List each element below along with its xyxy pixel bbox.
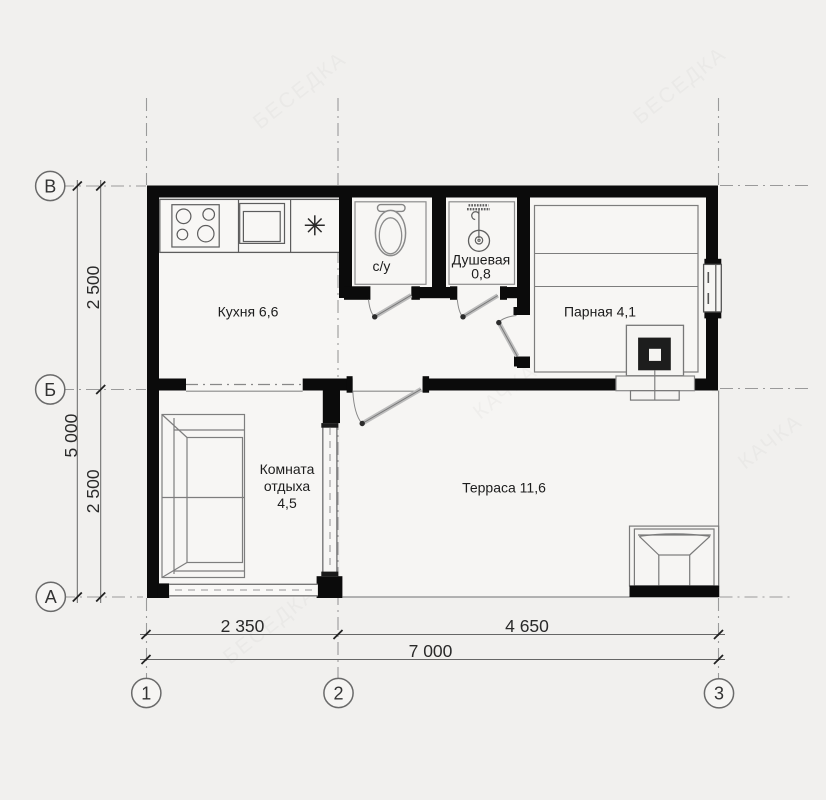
svg-text:Комната: Комната	[260, 461, 315, 477]
svg-text:4 650: 4 650	[505, 616, 549, 636]
svg-text:4,5: 4,5	[277, 495, 297, 511]
svg-text:с/у: с/у	[373, 258, 391, 274]
svg-text:Кухня 6,6: Кухня 6,6	[218, 304, 279, 320]
svg-text:Терраса 11,6: Терраса 11,6	[462, 480, 546, 496]
svg-text:1: 1	[141, 683, 151, 703]
svg-text:Парная 4,1: Парная 4,1	[564, 304, 636, 320]
svg-text:2 500: 2 500	[83, 265, 103, 309]
svg-text:Б: Б	[44, 380, 56, 400]
svg-text:0,8: 0,8	[471, 266, 491, 282]
svg-text:5 000: 5 000	[61, 413, 81, 457]
svg-text:А: А	[45, 587, 57, 607]
svg-text:2 350: 2 350	[221, 616, 265, 636]
svg-text:2: 2	[333, 683, 343, 703]
svg-text:3: 3	[714, 684, 724, 704]
svg-text:отдыха: отдыха	[264, 478, 311, 494]
svg-text:2 500: 2 500	[83, 469, 103, 513]
svg-text:7 000: 7 000	[409, 641, 453, 661]
svg-text:В: В	[44, 176, 56, 196]
